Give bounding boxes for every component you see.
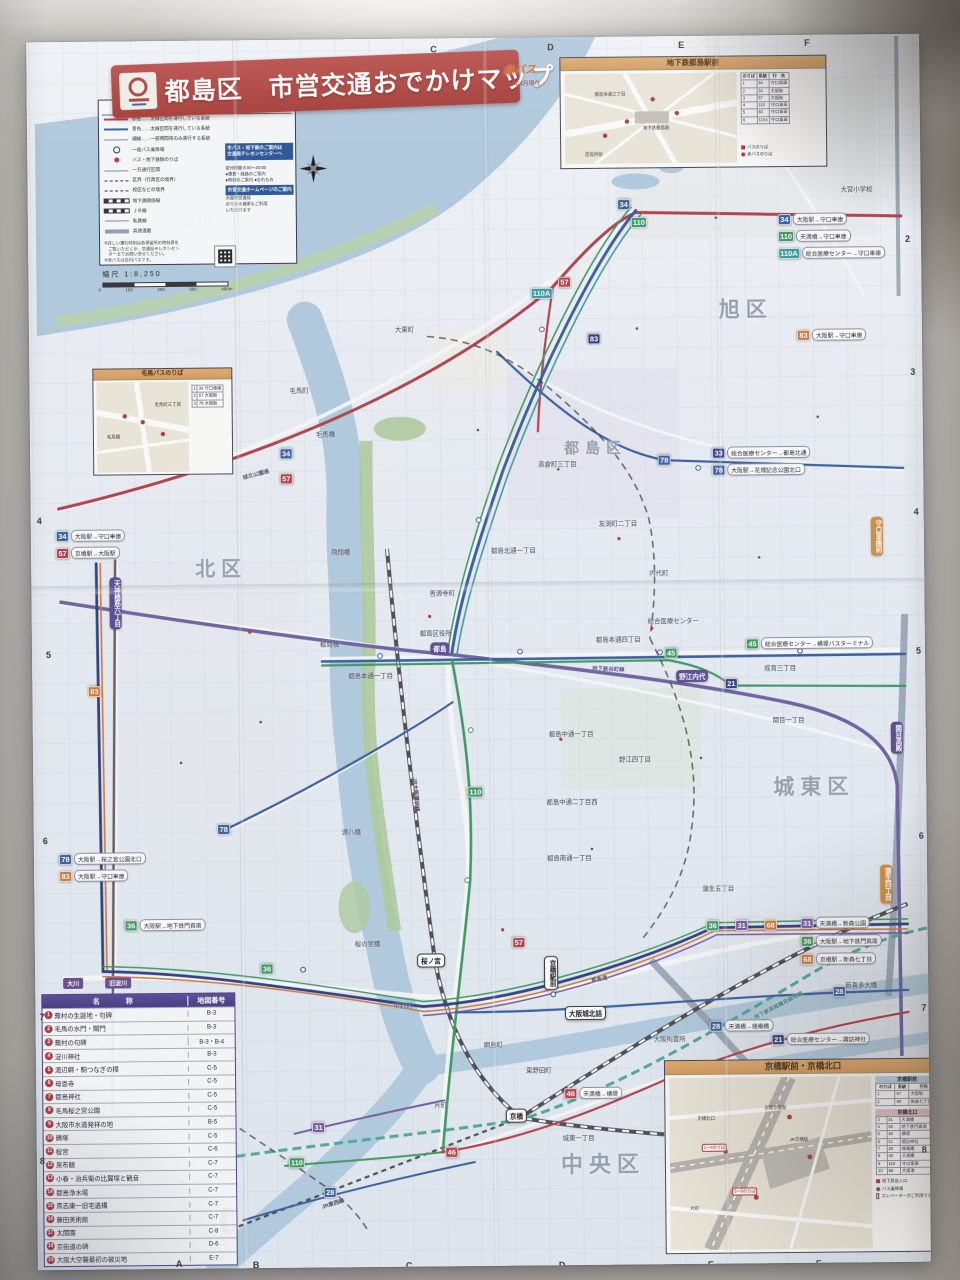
route-badge: 46 [445,1147,458,1158]
inset-legend-row: バスのりば [741,144,772,150]
station-label: 京橋駅前 [544,956,558,991]
inset-legend-row: エレベーターがご利用できます [876,1193,931,1200]
inset-header: 毛馬バスのりば [93,368,231,380]
grid-label: F [816,1259,822,1269]
inset-map-label: 京阪京橋駅 [764,1105,786,1111]
edition-note: 2002年4月現在 [500,78,541,89]
landmark-number: 18 [47,1242,55,1250]
route-number: 36 [706,920,719,931]
place-label: 関目一丁目 [773,715,805,724]
inset-table: 134 守口車庫257 大阪駅378 大阪駅 [191,384,223,407]
grid-label: 6 [43,836,48,846]
route-number: 46 [564,1088,577,1099]
place-label: 毛馬橋 [316,429,335,438]
landmark-name: 淀川神社 [55,1050,188,1060]
landmark-name: 大阪大空襲最初の被災地 [57,1254,190,1264]
route-number: 28 [324,1187,337,1198]
route-badge: 28天満橋→徳庵橋 [710,1019,774,1032]
landmark-name: 都島神社 [55,1091,188,1101]
route-badge: 21 [725,678,738,689]
route-destination: 天満橋→横堤 [579,1087,622,1099]
landmark-name: 京街道の碑 [57,1241,190,1251]
route-number: 45 [746,638,759,649]
place-label: 網島町 [484,1040,503,1049]
landmark-number: 12 [46,1161,54,1169]
route-badge: 110 [631,217,647,228]
landmark-grid-ref: C-5 [189,1133,236,1139]
place-label: 片町 [434,1100,447,1109]
place-label: 都島北通一丁目 [491,545,536,554]
subway-exit-icon [876,1179,880,1183]
route-number: 45 [664,648,677,659]
grid-label: 3 [910,367,915,377]
inset-map-label: 区役所前 [585,152,603,158]
place-label: 桜の宮橋 [355,939,381,948]
legend-sample [104,190,130,191]
landmark-number: 7 [45,1093,53,1101]
legend-sample [103,129,129,131]
route-number: 57 [558,277,571,288]
route-badge: 57 [280,473,293,484]
route-badge: 21総合医療センター→諏訪神社 [772,1032,870,1045]
route-number: 83 [59,870,72,881]
landmark-number: 13 [46,1175,54,1183]
route-number: 34 [280,448,293,459]
route-number: 78 [59,853,72,864]
compass-icon [298,153,328,188]
landmark-table: 名 称 地図番号 1蕪村の生誕地・句碑B-32毛馬の水門・閘門B-33蕪村の句碑… [41,992,238,1267]
landmark-grid-ref: D-6 [190,1242,237,1248]
place-label: 大阪拘置所 [654,1034,686,1043]
route-badge: 34 [280,448,293,459]
landmark-grid-ref: C-7 [189,1201,236,1207]
legend-row: 高速道路 [104,226,222,237]
station-label: 野江内代 [676,670,708,682]
route-badge: 68京橋駅→新森七丁目 [801,952,876,965]
station-label: 大阪城北詰 [565,1006,606,1020]
legend-sample-glyph [104,139,128,140]
route-number: 83 [88,686,101,697]
place-label: 都島本通四丁目 [596,634,641,643]
route-destination: 京橋駅→大阪駅 [71,546,120,558]
route-destination: 天満橋→徳庵橋 [725,1019,774,1031]
scale-tick: 0 [98,288,101,293]
route-number: 78 [658,455,671,466]
route-number: 110 [289,1157,305,1168]
route-number: 31 [735,920,748,931]
route-number: 83 [587,333,600,344]
grid-label: 8 [922,1145,927,1155]
grid-label: 7 [921,1003,926,1013]
bus-stop-icon [876,1187,880,1191]
place-label: 都島中通二丁目西 [546,797,597,806]
legend-sample-glyph [114,158,119,163]
station-label: 都島 [430,642,449,654]
legend-row-text: ＪＲ線 [133,208,147,214]
route-destination: 大阪駅→地下鉄門真南 [140,919,206,932]
qr-code [214,245,236,267]
place-label: 高倉町三丁目 [538,459,576,468]
route-destination: 総合医療センター→諏訪神社 [787,1032,870,1045]
subway-exit-icon [741,145,745,149]
place-label: 大宮小学校 [841,184,873,193]
landmark-number: 9 [45,1120,53,1128]
landmark-name: 鵺塚 [56,1132,189,1142]
route-number: 110A [531,288,553,299]
inset-legend: バスのりば赤バスのりば [741,142,772,157]
place-label: 友渕町二丁目 [599,518,637,527]
place-label: 都島南通一丁目 [547,853,592,862]
route-badge: 83大阪駅→守口車庫 [797,328,867,341]
landmark-name: 毛馬の水門・閘門 [55,1023,188,1033]
landmark-grid-ref: C-7 [189,1187,236,1193]
legend-info-text: 受付時間 8:00〜20:00●運賃・経路のご案内●時刻のご案内 ●忘れもの [225,165,295,184]
place-label: 総合医療センター [648,616,699,625]
legend-row-text: 区界（行政区の境界） [132,177,178,183]
scale-tick: 100 [125,287,133,292]
grid-label: A [176,1259,183,1269]
legend-sample-glyph [104,170,128,171]
place-label: 都島区役所 [420,628,452,637]
landmark-number: 6 [45,1079,53,1087]
inset-header: 地下鉄都島駅前 [560,56,825,72]
legend-sample [103,118,129,120]
landmark-number: 8 [45,1107,53,1115]
place-label: 東野田町 [526,1065,552,1074]
route-number: 36 [260,963,273,974]
grid-label: C [430,44,437,54]
station-label: 守口車庫前 [871,517,883,556]
route-number: 34 [617,199,630,210]
station-label: 京橋 [506,1109,527,1123]
route-badge: 83大阪駅→守口車庫 [59,869,129,882]
inset-legend-text: エレベーターがご利用できます [882,1193,931,1200]
legend-sample [104,221,130,222]
landmark-grid-ref: B-5 [188,1119,235,1125]
inset-map-label: 1〜4のりば [702,1144,727,1152]
grid-label: E [708,1260,714,1270]
landmark-number: 5 [45,1066,53,1074]
scale-tick: 300 [189,287,197,292]
route-badge: 33総合医療センター→都島北通 [712,446,810,459]
route-badge: 110A総合医療センター→守口車庫 [778,246,885,259]
route-badge: 57 [512,937,525,948]
grid-label: 5 [46,650,51,660]
river-name-ribbon: 大川 [63,978,83,989]
river-name-ribbon: 旧淀川 [105,977,131,988]
scale-label: 縮尺 1:8,250 [102,268,232,279]
route-number: 110 [778,230,794,241]
route-destination: 大阪駅→花博記念公園北口 [727,463,805,476]
route-number: 78 [217,824,230,835]
route-badge: 110天満橋→守口車庫 [778,229,851,242]
route-destination: 京橋駅→新森七丁目 [816,952,876,965]
inset-legend-text: 地下鉄出入口 [882,1178,907,1184]
landmark-number: 11 [46,1147,54,1155]
landmark-grid-ref: C-5 [188,1106,235,1112]
route-badge: 78大阪駅→桜之宮公園北口 [59,852,146,865]
grid-label: D [547,42,554,52]
legend-note-line: ※赤バスは百円バスです。 [104,256,224,263]
legend-sample [103,170,129,171]
inset-table: のりば系統行 先134守口車庫234大阪駅357大阪駅4110守口車庫583守口… [740,72,789,125]
route-number: 57 [280,473,293,484]
landmark-grid-ref: C-5 [188,1092,235,1098]
legend-row-text: 高速道路 [133,228,151,234]
inset-map: JR京橋駅京阪京橋駅京橋北口片町1〜4のりば5〜8のりば [669,1076,873,1250]
inset-subway-station: 地下鉄都島駅前 地下鉄都島駅都島本通三丁目区役所前 のりば系統行 先134守口車… [559,55,827,170]
landmark-number: 2 [45,1025,53,1033]
route-badge: 36大阪駅→地下鉄門真南 [801,934,882,947]
landmark-name: 母恩寺 [55,1078,188,1088]
route-number: 57 [512,937,525,948]
inset-map-label: 京橋北口 [697,1116,715,1122]
route-number: 68 [764,920,777,931]
route-badge: 83 [88,686,101,697]
legend-row-text: 地下鉄関係線 [133,198,161,204]
inset-map: 地下鉄都島駅都島本通三丁目区役所前 [564,72,737,164]
grid-label: 6 [919,831,924,841]
route-number: 28 [833,986,846,997]
landmark-name: 毛馬桜之宮公園 [55,1105,188,1115]
legend-sample [103,146,129,153]
inset-legend-row: 赤バスのりば [741,151,772,157]
route-destination: 総合医療センター→都島北通 [727,446,810,459]
route-badge: 34大阪駅→守口車庫 [56,529,126,542]
landmark-grid-ref: E-7 [190,1255,237,1261]
place-label: 新喜多大橋 [845,980,877,989]
legend-sample-glyph [104,129,128,131]
landmark-name: 渡辺綱・駒つなぎの樟 [55,1064,188,1074]
route-number: 31 [801,917,814,928]
place-label: 蒲生五丁目 [702,884,734,893]
grid-label: C [406,1261,413,1271]
route-badge: 78 [217,824,230,835]
scale-tick: 400m [221,286,232,291]
route-number: 31 [312,1122,325,1133]
grid-label: 4 [914,507,919,517]
landmark-number: 15 [46,1202,54,1210]
landmark-grid-ref: C-7 [189,1215,236,1221]
route-number: 46 [445,1147,458,1158]
landmark-number: 19 [47,1256,55,1264]
route-number: 34 [56,530,69,541]
route-badge: 68 [764,920,777,931]
legend-sample [104,209,130,214]
legend-sample [104,230,130,234]
legend-row-text: 一般バス乗降場 [132,147,164,153]
inset-legend-text: バス乗降場 [882,1186,903,1192]
landmark-name: 貴志康一旧宅遺構 [56,1200,189,1210]
grid-label: 8 [40,1156,45,1166]
route-badge: 78 [658,455,671,466]
transport-bureau-logo-icon [119,72,157,110]
grid-label: 2 [905,234,910,244]
legend-notes: ※詳しい運行時刻は各停留所の時刻表を ご覧いただくか、交通局テレホンセン ターま… [104,239,224,263]
landmark-number: 10 [46,1134,54,1142]
route-badge: 34 [617,199,630,210]
grid-label: 5 [916,646,921,656]
landmark-grid-ref: B-3・B-4 [188,1036,235,1045]
place-label: 善源寺町 [429,588,455,597]
place-label: 飛翔橋 [331,547,350,556]
legend-sample [103,180,129,181]
legend-row-text: 校区などの境界 [133,187,165,193]
route-destination: 大阪駅→地下鉄門真南 [816,934,882,947]
inset-map-label: 毛馬橋 [107,434,120,440]
landmark-number: 4 [45,1052,53,1060]
route-badge: 57京橋駅→大阪駅 [56,546,120,559]
inset-map-label: 都島本通三丁目 [595,92,626,98]
route-number: 57 [56,547,69,558]
landmark-number: 16 [46,1215,54,1223]
route-badge: 34大阪駅→守口車庫 [778,212,848,225]
inset-legend-text: バスのりば [747,144,768,150]
landmark-name: 小春・治兵衛の比翼塚と観音 [56,1173,189,1183]
landmark-number: 1 [44,1011,52,1019]
landmark-number: 14 [46,1188,54,1196]
place-label: 源八橋 [342,827,361,836]
route-destination: 総合医療センター→守口車庫 [802,246,885,259]
paper-map: 都島区 市営交通おでかけマップ 赤バス 2002年4月現在 凡 例 赤色……太線… [26,34,931,1271]
bus-stop-icon [741,152,745,156]
ward-label: 旭区 [719,293,773,324]
scale-bar: 縮尺 1:8,250 0100200300400m [102,268,232,292]
route-number: 78 [712,464,725,475]
legend-sample-glyph [105,190,129,191]
legend-row-text: 一方通行区間 [132,167,160,173]
inset-map-label: JR京橋駅 [790,1137,809,1143]
route-destination: 天満橋→新森公園 [816,916,871,929]
legend-row-text: 細線……一部時間帯のみ運行する系統 [132,136,210,143]
route-badge: 36 [260,963,273,974]
route-badge: 28 [833,986,846,997]
route-number: 36 [801,935,814,946]
landmark-grid-ref: C-7 [189,1174,236,1180]
landmark-row: 19大阪大空襲最初の被災地E-7 [45,1251,237,1266]
legend: 凡 例 赤色……太線区間を運行している系統青色……太線区間を運行している系統細線… [98,98,298,266]
landmark-name: 都島浄水場 [56,1186,189,1196]
legend-info-line: いただけます [226,207,296,214]
legend-info-text: 大阪市交通局のりかえ検索もご利用いただけます [226,195,296,214]
route-badge: 83 [587,333,600,344]
inset-tables: 京橋駅前 のりば系統行先157大阪駅268新森七丁目 京橋北口 331天満橋43… [875,1076,931,1200]
legend-sample-glyph [113,147,120,154]
scale-tick: 200 [157,287,165,292]
route-number: 21 [725,678,738,689]
station-label: 桜ノ宮 [417,953,445,967]
ward-label: 中央区 [561,1146,645,1179]
place-label: 成育三丁目 [764,663,796,672]
inset-kyobashi: 京橋駅前・京橋北口 JR京橋駅京阪京橋駅京橋北口片町1〜4のりば5〜8のりば 京… [664,1058,931,1255]
landmark-name: 蕪村の生誕地・句碑 [54,1010,187,1020]
route-number: 83 [797,329,810,340]
landmark-name: 大阪市水道発祥の地 [55,1118,188,1128]
grid-label: E [678,40,684,50]
route-badge: 46天満橋→横堤 [564,1087,622,1100]
place-label: 中野町 [393,1001,412,1010]
place-label: 野江四丁目 [619,754,651,763]
place-label: 都島橋 [320,639,339,648]
ward-label: 北区 [195,552,247,581]
inset-legend-row: 地下鉄出入口 [876,1178,931,1185]
legend-row-text: 青色……太線区間を運行している系統 [132,126,210,133]
route-badge: 31天満橋→新森公園 [801,916,871,929]
legend-row-text: 私鉄線 [133,218,147,224]
route-destination: 大阪駅→桜之宮公園北口 [74,852,146,865]
route-number: 34 [778,213,791,224]
landmark-grid-ref: C-7 [189,1160,236,1166]
landmark-grid-ref: B-3 [188,1024,235,1030]
ward-label: 城東区 [773,770,854,801]
grid-label: 4 [37,516,42,526]
photo-of-paper-map: 都島区 市営交通おでかけマップ 赤バス 2002年4月現在 凡 例 赤色……太線… [0,0,960,1280]
inset-header: 京橋駅前・京橋北口 [665,1059,931,1076]
route-destination: 大阪駅→守口車庫 [793,212,848,225]
route-number: 36 [125,920,138,931]
brand-label: 赤バス [499,61,540,79]
place-label: 大東町 [395,325,414,334]
landmark-number: 17 [47,1229,55,1237]
legend-info-line: 市営交通ホームページのご案内 [228,187,292,194]
ward-label: 都島区 [564,437,627,459]
place-label: 都島中通一丁目 [549,729,594,738]
legend-sample-glyph [104,180,128,181]
route-number: 110 [631,217,647,228]
landmark-name: 蕪村の句碑 [55,1037,188,1047]
legend-sample [103,158,129,163]
grid-label: D [559,1260,566,1270]
inset-map-label: 片町 [690,1206,699,1212]
inset-map: 毛馬橋毛馬町三丁目 [96,382,189,473]
route-badge: 110 [467,786,483,797]
route-number: 110A [778,247,800,258]
route-number: 68 [801,953,814,964]
station-label: 蒲生四丁目 [880,865,892,904]
route-badge: 31 [312,1122,325,1133]
station-label: 関目高殿 [891,722,903,755]
route-badge: 45 [664,648,677,659]
route-badge: 28 [324,1187,337,1198]
route-destination: 総合医療センター→横堤バスターミナル [761,636,873,649]
elevator-icon [876,1193,879,1199]
route-destination: 大阪駅→守口車庫 [812,328,867,341]
page-title: 都島区 市営交通おでかけマップ [164,57,555,108]
route-badge: 45総合医療センター→横堤バスターミナル [746,636,873,649]
legend-sample [103,139,129,140]
legend-sample-glyph [104,198,130,203]
route-badge: 57 [558,277,571,288]
legend-row-text: バス・地下鉄駅のりば [132,157,178,163]
inset-map-label: 地下鉄都島駅 [643,125,669,131]
legend-info-line: 交通局テレホンセンターへ [227,151,291,158]
route-destination: 大阪駅→守口車庫 [74,869,129,882]
route-number: 110 [467,786,483,797]
place-label: 城東一丁目 [563,1133,595,1142]
route-badge: 78大阪駅→花博記念公園北口 [712,463,805,476]
station-label: 天神橋筋六丁目 [109,577,122,629]
route-number: 21 [772,1034,785,1045]
inset-legend-text: 赤バスのりば [747,151,772,157]
grid-label: B [253,1260,260,1270]
inset-map-label: 5〜8のりば [732,1187,757,1195]
place-label: 内代町 [649,568,668,577]
route-badge: 36大阪駅→地下鉄門真南 [125,919,206,932]
inset-kema: 毛馬バスのりば 毛馬橋毛馬町三丁目 134 守口車庫257 大阪駅378 大阪駅 [92,367,233,475]
route-badge: 31 [735,920,748,931]
landmark-grid-ref: C-8 [190,1228,237,1234]
landmark-grid-ref: B-3 [187,1011,234,1017]
